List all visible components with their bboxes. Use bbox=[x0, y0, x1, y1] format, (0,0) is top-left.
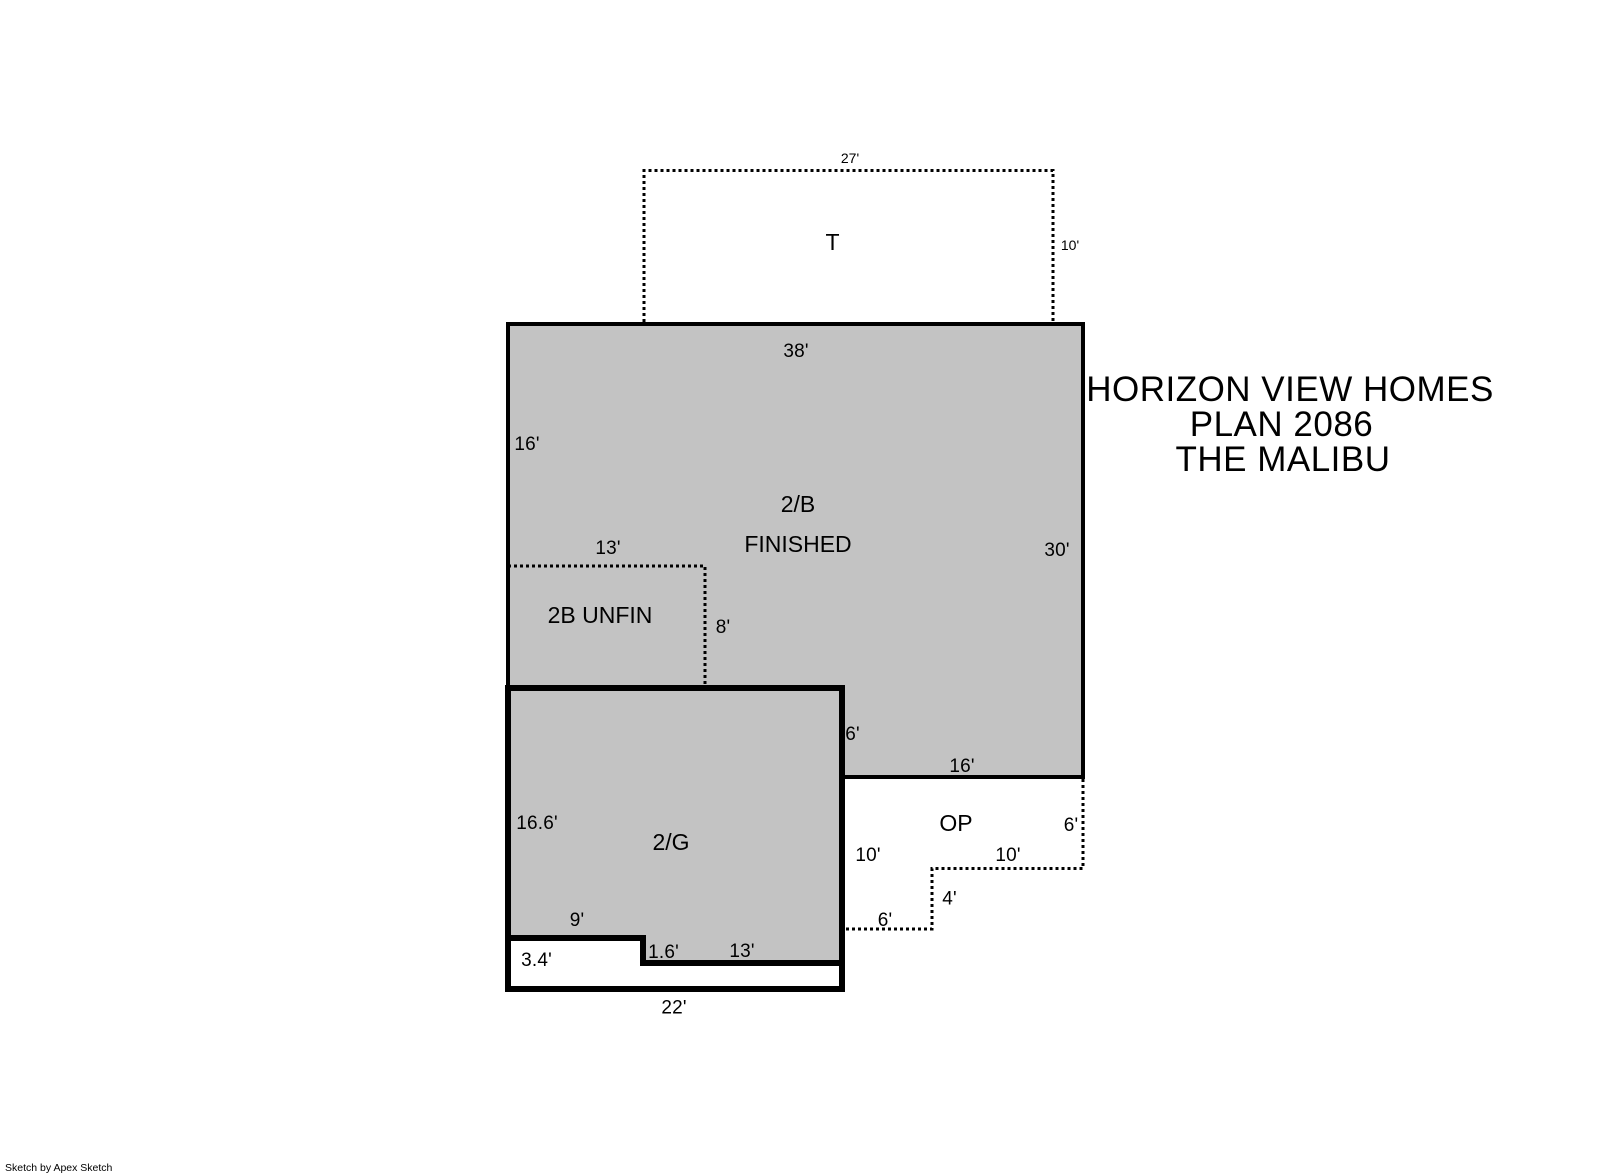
svg-text:13': 13' bbox=[729, 941, 754, 962]
svg-text:HORIZON VIEW HOMES: HORIZON VIEW HOMES bbox=[1086, 370, 1494, 409]
svg-text:13': 13' bbox=[595, 538, 620, 559]
svg-text:6': 6' bbox=[878, 910, 893, 931]
svg-text:2/B: 2/B bbox=[781, 491, 816, 517]
svg-text:FINISHED: FINISHED bbox=[744, 531, 851, 557]
svg-text:22': 22' bbox=[661, 998, 686, 1019]
svg-text:27': 27' bbox=[841, 150, 859, 166]
svg-text:30': 30' bbox=[1044, 540, 1069, 561]
svg-text:2B UNFIN: 2B UNFIN bbox=[548, 602, 653, 628]
svg-text:4': 4' bbox=[942, 889, 957, 910]
svg-text:10': 10' bbox=[1061, 237, 1079, 253]
svg-text:8': 8' bbox=[716, 617, 731, 638]
svg-text:6': 6' bbox=[845, 724, 860, 745]
svg-text:16.6': 16.6' bbox=[516, 813, 558, 834]
svg-text:38': 38' bbox=[783, 341, 808, 362]
svg-text:THE MALIBU: THE MALIBU bbox=[1175, 440, 1390, 479]
svg-text:6': 6' bbox=[1064, 815, 1079, 836]
svg-text:2/G: 2/G bbox=[652, 829, 689, 855]
svg-text:16': 16' bbox=[514, 434, 539, 455]
svg-text:OP: OP bbox=[939, 810, 972, 836]
svg-text:9': 9' bbox=[570, 910, 585, 931]
svg-text:10': 10' bbox=[855, 845, 880, 866]
svg-text:16': 16' bbox=[949, 756, 974, 777]
svg-text:PLAN 2086: PLAN 2086 bbox=[1190, 405, 1374, 444]
svg-text:3.4': 3.4' bbox=[521, 950, 552, 971]
svg-text:T: T bbox=[825, 229, 839, 255]
svg-text:10': 10' bbox=[995, 845, 1020, 866]
svg-text:1.6': 1.6' bbox=[648, 942, 679, 963]
svg-text:Sketch by Apex Sketch: Sketch by Apex Sketch bbox=[5, 1162, 113, 1174]
